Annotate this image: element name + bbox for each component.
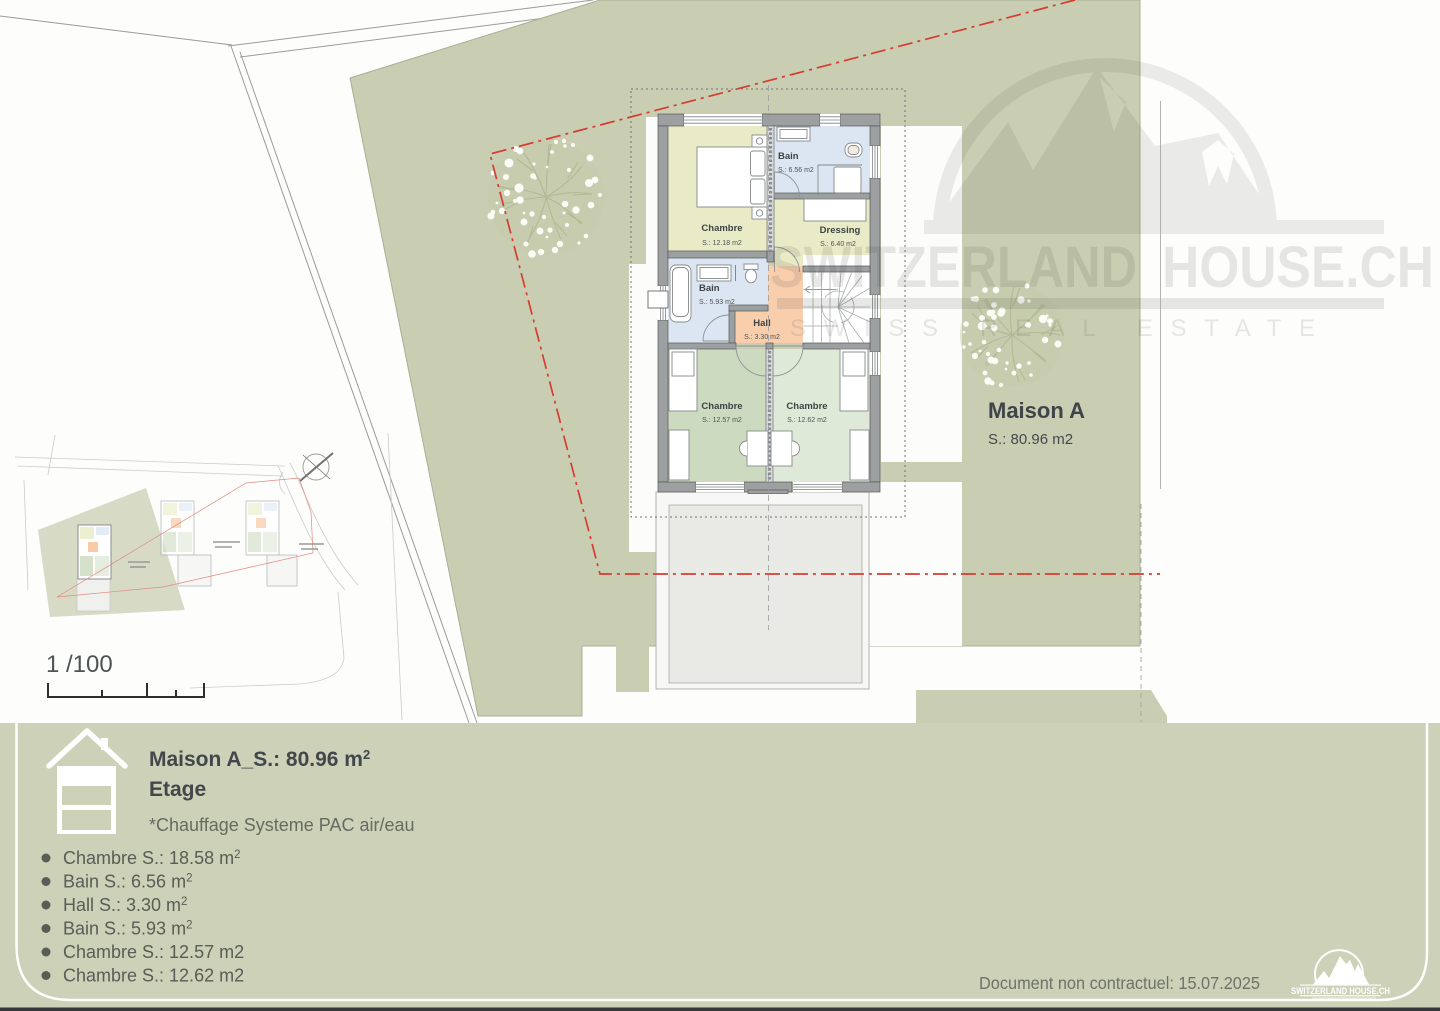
svg-text:Chambre S.: 18.58 m2: Chambre S.: 18.58 m2 (63, 848, 241, 868)
svg-text:S.: 12.57 m2: S.: 12.57 m2 (702, 417, 742, 424)
svg-text:Bain: Bain (778, 151, 799, 162)
svg-text:Maison A: Maison A (988, 398, 1085, 423)
svg-text:SWISS REAL ESTATE: SWISS REAL ESTATE (790, 315, 1327, 342)
svg-text:Chambre: Chambre (701, 223, 742, 234)
svg-text:Etage: Etage (149, 778, 206, 801)
svg-text:Maison A_S.: 80.96 m2: Maison A_S.: 80.96 m2 (149, 747, 370, 771)
svg-text:HOUSE.CH: HOUSE.CH (1162, 235, 1434, 300)
svg-text:Bain: Bain (699, 283, 720, 294)
svg-text:S.: 6.56 m2: S.: 6.56 m2 (778, 167, 814, 174)
svg-text:Chambre S.: 12.62 m2: Chambre S.: 12.62 m2 (63, 966, 244, 986)
svg-text:S.: 3.30 m2: S.: 3.30 m2 (744, 334, 780, 341)
svg-text:S.: 12.18 m2: S.: 12.18 m2 (702, 240, 742, 247)
svg-text:SWITZERLAND HOUSE.CH: SWITZERLAND HOUSE.CH (1291, 986, 1390, 996)
svg-text:Hall S.: 3.30 m2: Hall S.: 3.30 m2 (63, 895, 187, 915)
svg-text:S.: 80.96 m2: S.: 80.96 m2 (988, 431, 1073, 448)
svg-text:Chambre: Chambre (701, 401, 742, 412)
svg-text:Bain S.: 5.93 m2: Bain S.: 5.93 m2 (63, 919, 192, 939)
svg-text:1 /100: 1 /100 (46, 651, 113, 678)
svg-text:Chambre S.: 12.57 m2: Chambre S.: 12.57 m2 (63, 942, 244, 962)
svg-text:S.: 5.93 m2: S.: 5.93 m2 (699, 299, 735, 306)
svg-text:Document non contractuel: 15.0: Document non contractuel: 15.07.2025 (979, 973, 1260, 993)
svg-text:SWITZERLAND: SWITZERLAND (770, 235, 1137, 300)
svg-text:Bain S.: 6.56 m2: Bain S.: 6.56 m2 (63, 872, 192, 892)
svg-text:S.: 12.62 m2: S.: 12.62 m2 (787, 417, 827, 424)
svg-text:Chambre: Chambre (786, 401, 827, 412)
svg-text:*Chauffage Systeme PAC air/eau: *Chauffage Systeme PAC air/eau (149, 815, 414, 835)
